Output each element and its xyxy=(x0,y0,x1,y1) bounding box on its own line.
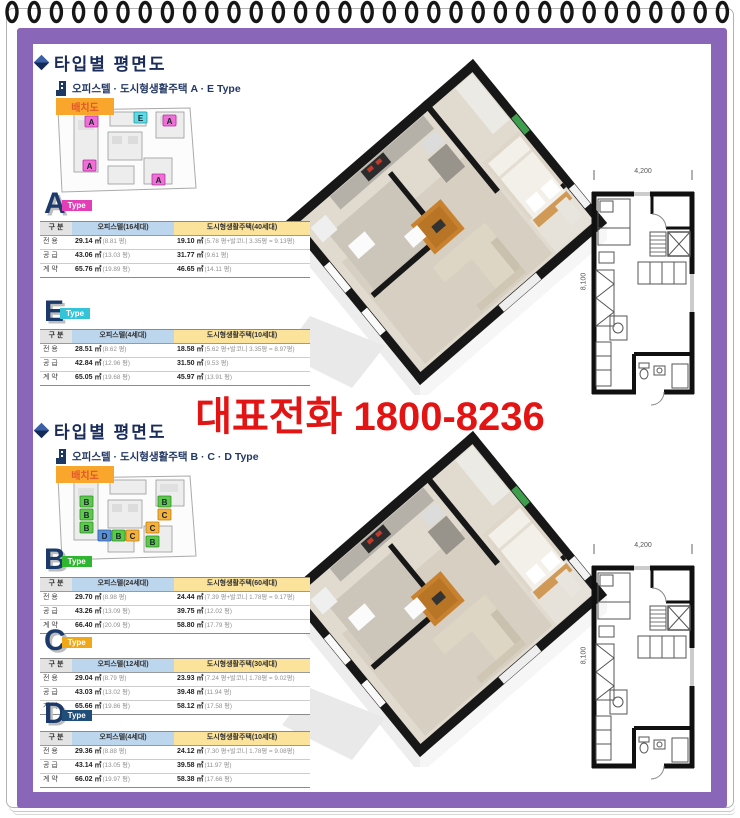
spiral-ring xyxy=(384,3,394,22)
section1-title: 타입별 평면도 xyxy=(36,50,167,75)
spiral-ring xyxy=(229,3,239,22)
area-cell: 58.12 ㎡(17.58 평) xyxy=(174,701,310,715)
section2-subtitle-text: 오피스텔 · 도시형생활주택 B · C · D Type xyxy=(72,449,259,464)
table-row: 전 용29.70 ㎡(8.98 평)24.44 ㎡(7.39 평+발코니 1.7… xyxy=(40,592,310,606)
svg-text:A: A xyxy=(156,176,162,185)
area-cell: 43.14 ㎡(13.05 평) xyxy=(72,760,174,774)
spiral-ring xyxy=(118,3,128,22)
row-label: 공 급 xyxy=(40,760,72,774)
area-cell: 43.26 ㎡(13.09 평) xyxy=(72,606,174,620)
spiral-ring xyxy=(584,3,594,22)
spiral-ring xyxy=(540,3,550,22)
column-header: 오피스텔(4세대) xyxy=(72,330,174,344)
floorplan-2d-2: 4,200 8,100 xyxy=(580,540,714,780)
svg-text:A: A xyxy=(167,117,173,126)
dim-width-2: 4,200 xyxy=(607,542,679,549)
column-header: 구 분 xyxy=(40,330,72,344)
area-cell: 29.04 ㎡(8.79 평) xyxy=(72,673,174,687)
type-e-heading: EType xyxy=(44,297,90,327)
type-c-badge: Type xyxy=(62,637,92,648)
area-cell: 58.38 ㎡(17.66 평) xyxy=(174,774,310,788)
spiral-ring xyxy=(207,3,217,22)
table-row: 계 약66.02 ㎡(19.97 평)58.38 ㎡(17.66 평) xyxy=(40,774,310,788)
row-label: 전 용 xyxy=(40,236,72,250)
unit-chip-C: C xyxy=(146,522,159,533)
svg-text:C: C xyxy=(130,532,136,541)
unit-chip-B: B xyxy=(158,496,171,507)
unit-chip-B: B xyxy=(80,509,93,520)
column-header: 오피스텔(12세대) xyxy=(72,659,174,673)
spiral-ring xyxy=(273,3,283,22)
svg-text:B: B xyxy=(84,524,90,533)
column-header: 도시형생활주택(40세대) xyxy=(174,222,310,236)
building-icon xyxy=(56,449,66,464)
area-cell: 39.48 ㎡(11.94 평) xyxy=(174,687,310,701)
svg-text:A: A xyxy=(87,162,93,171)
spiral-ring xyxy=(717,3,727,22)
area-cell: 42.84 ㎡(12.96 평) xyxy=(72,358,174,372)
unit-chip-D: D xyxy=(98,530,111,541)
area-cell: 39.58 ㎡(11.97 평) xyxy=(174,760,310,774)
column-header: 구 분 xyxy=(40,222,72,236)
row-label: 전 용 xyxy=(40,344,72,358)
row-label: 전 용 xyxy=(40,592,72,606)
siteplan-badge-1: 배치도 xyxy=(56,98,114,115)
svg-text:B: B xyxy=(84,498,90,507)
spiral-ring xyxy=(695,3,705,22)
unit-chip-A: A xyxy=(152,174,165,185)
spiral-ring xyxy=(451,3,461,22)
flyer-page: 타입별 평면도 오피스텔 · 도시형생활주택 A · E Type 배치도 AE… xyxy=(0,0,740,818)
section2-subtitle: 오피스텔 · 도시형생활주택 B · C · D Type xyxy=(56,449,259,464)
svg-text:A: A xyxy=(89,118,95,127)
unit-chip-A: A xyxy=(83,160,96,171)
area-cell: 46.65 ㎡(14.11 평) xyxy=(174,264,310,278)
area-cell: 31.77 ㎡(9.61 평) xyxy=(174,250,310,264)
floorplan-2d-2-drawing xyxy=(580,540,714,780)
spiral-ring xyxy=(318,3,328,22)
spiral-ring xyxy=(185,3,195,22)
iso-render-2 xyxy=(280,422,610,767)
unit-chip-B: B xyxy=(146,536,159,547)
table-row: 공 급42.84 ㎡(12.96 평)31.50 ㎡(9.53 평) xyxy=(40,358,310,372)
row-label: 전 용 xyxy=(40,673,72,687)
column-header: 오피스텔(4세대) xyxy=(72,732,174,746)
type-c-heading: CType xyxy=(44,626,92,656)
iso-render-1 xyxy=(280,50,610,395)
area-cell: 28.51 ㎡(8.62 평) xyxy=(72,344,174,358)
area-cell: 24.44 ㎡(7.39 평+발코니 1.78평 = 9.17평) xyxy=(174,592,310,606)
spiral-ring xyxy=(140,3,150,22)
area-cell: 29.36 ㎡(8.88 평) xyxy=(72,746,174,760)
column-header: 구 분 xyxy=(40,659,72,673)
table-row: 공 급43.14 ㎡(13.05 평)39.58 ㎡(11.97 평) xyxy=(40,760,310,774)
type-d-table: 구 분오피스텔(4세대)도시형생활주택(10세대)전 용29.36 ㎡(8.88… xyxy=(40,731,292,788)
column-header: 도시형생활주택(30세대) xyxy=(174,659,310,673)
area-cell: 18.58 ㎡(5.62 평+발코니 3.35평 = 8.97평) xyxy=(174,344,310,358)
spiral-ring xyxy=(251,3,261,22)
table-row: 공 급43.26 ㎡(13.09 평)39.75 ㎡(12.02 평) xyxy=(40,606,310,620)
column-header: 오피스텔(24세대) xyxy=(72,578,174,592)
spiral-ring xyxy=(518,3,528,22)
svg-text:B: B xyxy=(150,538,156,547)
section1-subtitle: 오피스텔 · 도시형생활주택 A · E Type xyxy=(56,81,241,96)
row-label: 계 약 xyxy=(40,264,72,278)
area-cell: 43.06 ㎡(13.03 평) xyxy=(72,250,174,264)
table-row: 계 약65.76 ㎡(19.89 평)46.65 ㎡(14.11 평) xyxy=(40,264,310,278)
column-header: 도시형생활주택(60세대) xyxy=(174,578,310,592)
unit-chip-C: C xyxy=(126,530,139,541)
type-d-heading: DType xyxy=(44,699,92,729)
unit-chip-C: C xyxy=(158,509,171,520)
spiral-ring xyxy=(606,3,616,22)
dim-height-1: 8,100 xyxy=(581,252,588,312)
column-header: 구 분 xyxy=(40,732,72,746)
area-cell: 19.10 ㎡(5.78 평+발코니 3.35평 = 9.13평) xyxy=(174,236,310,250)
svg-text:C: C xyxy=(150,524,156,533)
table-row: 전 용29.36 ㎡(8.88 평)24.12 ㎡(7.30 평+발코니 1.7… xyxy=(40,746,310,760)
building-icon xyxy=(56,81,66,96)
spiral-ring xyxy=(651,3,661,22)
table-row: 전 용28.51 ㎡(8.62 평)18.58 ㎡(5.62 평+발코니 3.3… xyxy=(40,344,310,358)
unit-chip-A: A xyxy=(163,115,176,126)
spiral-ring xyxy=(562,3,572,22)
dim-height-2: 8,100 xyxy=(581,626,588,686)
spiral-ring xyxy=(7,3,17,22)
row-label: 전 용 xyxy=(40,746,72,760)
svg-text:E: E xyxy=(138,114,144,123)
type-e-table: 구 분오피스텔(4세대)도시형생활주택(10세대)전 용28.51 ㎡(8.62… xyxy=(40,329,292,386)
spiral-ring xyxy=(495,3,505,22)
row-label: 공 급 xyxy=(40,606,72,620)
area-cell: 58.80 ㎡(17.79 평) xyxy=(174,620,310,634)
svg-text:B: B xyxy=(84,511,90,520)
type-a-badge: Type xyxy=(62,200,92,211)
table-row: 공 급43.06 ㎡(13.03 평)31.77 ㎡(9.61 평) xyxy=(40,250,310,264)
spiral-ring xyxy=(673,3,683,22)
floorplan-2d-1-drawing xyxy=(580,166,714,406)
table-row: 전 용29.14 ㎡(8.81 평)19.10 ㎡(5.78 평+발코니 3.3… xyxy=(40,236,310,250)
spiral-ring xyxy=(629,3,639,22)
unit-chip-B: B xyxy=(112,530,125,541)
unit-chip-B: B xyxy=(80,496,93,507)
row-label: 계 약 xyxy=(40,774,72,788)
row-label: 공 급 xyxy=(40,358,72,372)
area-cell: 66.02 ㎡(19.97 평) xyxy=(72,774,174,788)
type-b-heading: BType xyxy=(44,545,92,575)
type-a-table: 구 분오피스텔(16세대)도시형생활주택(40세대)전 용29.14 ㎡(8.8… xyxy=(40,221,292,278)
spiral-ring xyxy=(296,3,306,22)
svg-text:B: B xyxy=(162,498,168,507)
svg-text:D: D xyxy=(102,532,108,541)
unit-chip-B: B xyxy=(80,522,93,533)
svg-text:B: B xyxy=(116,532,122,541)
spiral-ring xyxy=(51,3,61,22)
svg-text:C: C xyxy=(162,511,168,520)
area-cell: 65.76 ㎡(19.89 평) xyxy=(72,264,174,278)
floorplan-2d-1: 4,200 8,100 xyxy=(580,166,714,406)
diamond-icon xyxy=(34,55,50,71)
area-cell: 29.70 ㎡(8.98 평) xyxy=(72,592,174,606)
area-cell: 29.14 ㎡(8.81 평) xyxy=(72,236,174,250)
spiral-binding xyxy=(0,0,740,26)
area-cell: 24.12 ㎡(7.30 평+발코니 1.78평 = 9.08평) xyxy=(174,746,310,760)
unit-chip-A: A xyxy=(85,116,98,127)
type-a-heading: AType xyxy=(44,189,92,219)
spiral-ring xyxy=(362,3,372,22)
column-header: 구 분 xyxy=(40,578,72,592)
spiral-ring xyxy=(29,3,39,22)
area-cell: 39.75 ㎡(12.02 평) xyxy=(174,606,310,620)
row-label: 공 급 xyxy=(40,250,72,264)
type-d-badge: Type xyxy=(62,710,92,721)
area-cell: 31.50 ㎡(9.53 평) xyxy=(174,358,310,372)
siteplan-map-1: AEAAA xyxy=(52,106,198,198)
table-row: 전 용29.04 ㎡(8.79 평)23.93 ㎡(7.24 평+발코니 1.7… xyxy=(40,673,310,687)
siteplan-badge-2: 배치도 xyxy=(56,466,114,483)
phone-banner: 대표전화 1800-8236 xyxy=(0,384,740,442)
section1-title-text: 타입별 평면도 xyxy=(54,50,167,75)
spiral-ring xyxy=(429,3,439,22)
unit-chip-E: E xyxy=(134,112,147,123)
spiral-ring xyxy=(340,3,350,22)
section1-subtitle-text: 오피스텔 · 도시형생활주택 A · E Type xyxy=(72,81,241,96)
type-b-badge: Type xyxy=(62,556,92,567)
type-e-badge: Type xyxy=(60,308,90,319)
column-header: 도시형생활주택(10세대) xyxy=(174,330,310,344)
spiral-ring xyxy=(473,3,483,22)
spiral-ring xyxy=(162,3,172,22)
spiral-ring xyxy=(407,3,417,22)
dim-width-1: 4,200 xyxy=(607,168,679,175)
spiral-ring xyxy=(96,3,106,22)
column-header: 오피스텔(16세대) xyxy=(72,222,174,236)
area-cell: 23.93 ㎡(7.24 평+발코니 1.78평 = 9.02평) xyxy=(174,673,310,687)
column-header: 도시형생활주택(10세대) xyxy=(174,732,310,746)
spiral-ring xyxy=(74,3,84,22)
